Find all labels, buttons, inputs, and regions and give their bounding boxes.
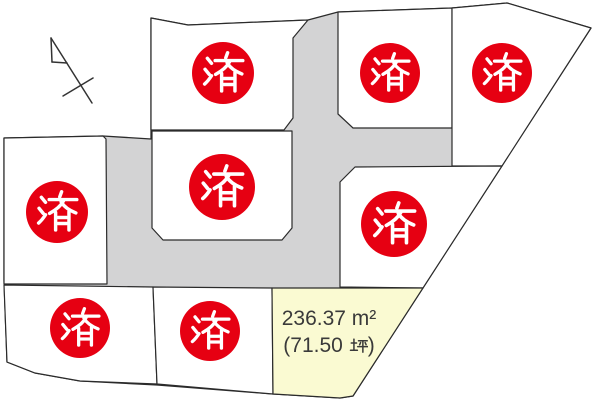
sold-stamp-icon	[472, 43, 532, 103]
available-lot-area-label: 236.37 m² (71.50 )	[268, 305, 390, 359]
sold-stamp-icon	[50, 298, 110, 358]
area-tsubo-close: )	[368, 334, 375, 357]
sold-stamp-icon	[192, 42, 254, 104]
area-tsubo-open: (71.50	[283, 334, 343, 357]
area-square-meters: 236.37 m²	[268, 305, 390, 332]
lot-map-canvas: 236.37 m² (71.50 )	[0, 0, 600, 404]
tsubo-unit-glyph	[349, 335, 368, 354]
area-tsubo: (71.50 )	[268, 332, 390, 359]
sold-stamp-icon	[189, 154, 255, 220]
north-arrow-icon	[51, 38, 93, 103]
sold-stamp-icon	[26, 181, 88, 243]
sold-stamp-icon	[361, 191, 427, 257]
sold-stamp-icon	[360, 43, 420, 103]
sold-stamp-icon	[180, 301, 240, 361]
